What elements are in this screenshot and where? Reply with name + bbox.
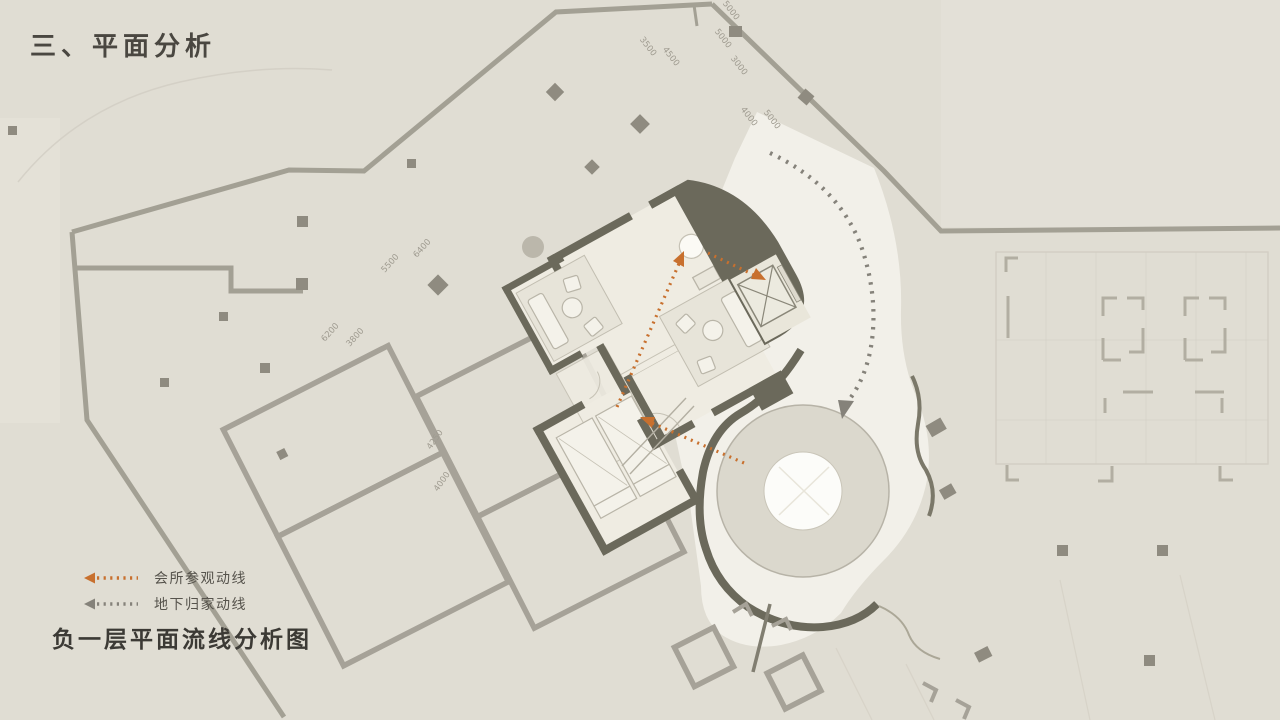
legend-label-underground-home: 地下归家动线 <box>154 594 247 614</box>
dimension-label: 3800 <box>345 326 367 349</box>
underground-home-arrow-icon <box>82 597 140 611</box>
dimension-label: 3500 <box>637 35 658 58</box>
plan-caption: 负一层平面流线分析图 <box>52 620 312 654</box>
dimension-label: 4000 <box>432 470 453 493</box>
legend-label-club-visit: 会所参观动线 <box>154 568 247 588</box>
legend-item-underground-home: 地下归家动线 <box>82 591 247 617</box>
page-title: 三、平面分析 <box>30 26 216 63</box>
dimension-label: 6400 <box>412 237 434 260</box>
turnaround-circle <box>717 405 889 577</box>
dimension-label: 3000 <box>728 54 749 77</box>
unit-plan-walls <box>1006 258 1233 481</box>
dimension-label: 4500 <box>660 45 681 68</box>
dimension-label: 6200 <box>320 321 342 344</box>
dimension-label: 5500 <box>380 252 402 275</box>
route-legend: 会所参观动线 地下归家动线 <box>82 565 247 617</box>
club-visit-arrow-icon <box>82 571 140 585</box>
tree-circle <box>522 236 544 258</box>
legend-item-club-visit: 会所参观动线 <box>82 565 247 591</box>
